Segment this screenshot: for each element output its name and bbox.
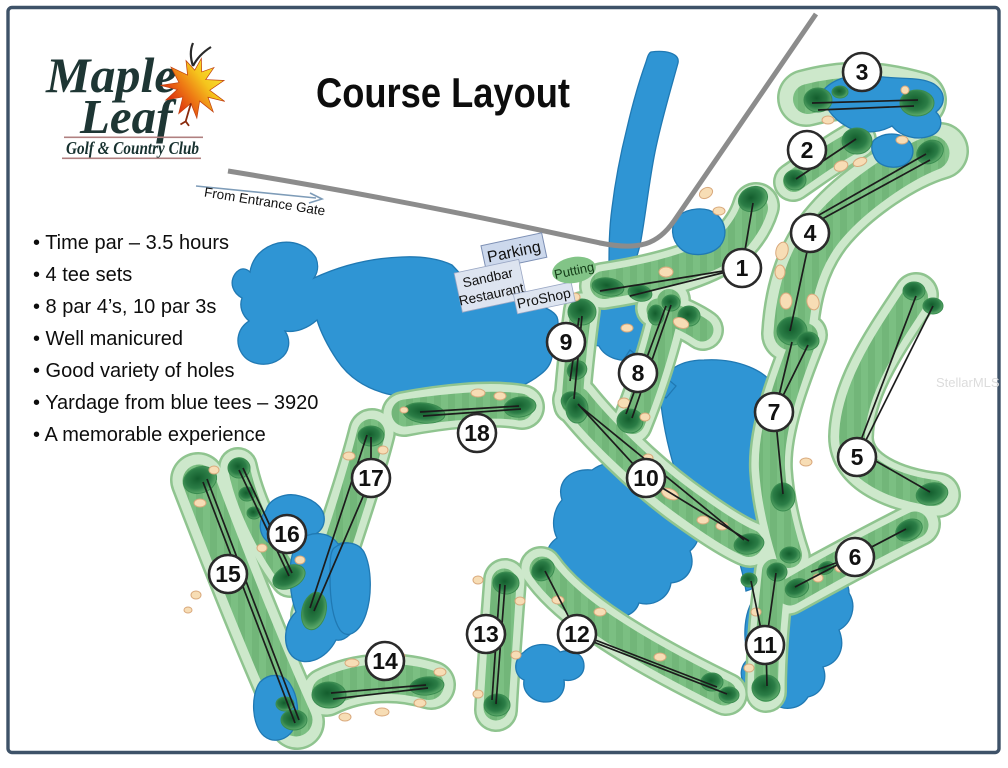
svg-text:4: 4 [804, 220, 817, 246]
svg-text:• 4 tee sets: • 4 tee sets [33, 264, 132, 286]
svg-text:7: 7 [768, 399, 781, 425]
svg-text:12: 12 [564, 621, 590, 647]
svg-text:18: 18 [464, 420, 490, 446]
svg-text:1: 1 [736, 255, 749, 281]
svg-text:• Good variety of holes: • Good variety of holes [33, 360, 235, 382]
svg-text:3: 3 [856, 59, 869, 85]
svg-text:8: 8 [632, 360, 645, 386]
svg-text:StellarMLS: StellarMLS [936, 375, 1000, 390]
svg-text:14: 14 [372, 648, 398, 674]
svg-text:9: 9 [560, 329, 573, 355]
svg-text:11: 11 [753, 632, 778, 658]
svg-text:• Yardage from blue tees – 392: • Yardage from blue tees – 3920 [33, 392, 318, 414]
svg-text:Golf & Country Club: Golf & Country Club [66, 138, 199, 158]
svg-text:• 8 par 4’s, 10 par 3s: • 8 par 4’s, 10 par 3s [33, 296, 216, 318]
svg-text:10: 10 [633, 465, 659, 491]
svg-text:17: 17 [358, 465, 384, 491]
svg-text:• A memorable experience: • A memorable experience [33, 424, 266, 446]
svg-text:13: 13 [473, 621, 499, 647]
svg-text:2: 2 [801, 137, 814, 163]
svg-text:• Well manicured: • Well manicured [33, 328, 183, 350]
svg-text:6: 6 [849, 544, 862, 570]
svg-text:16: 16 [274, 521, 300, 547]
svg-text:5: 5 [851, 444, 864, 470]
svg-text:Course Layout: Course Layout [316, 69, 570, 116]
svg-text:• Time par – 3.5 hours: • Time par – 3.5 hours [33, 232, 229, 254]
svg-text:15: 15 [215, 561, 241, 587]
svg-text:Leaf: Leaf [79, 89, 177, 144]
